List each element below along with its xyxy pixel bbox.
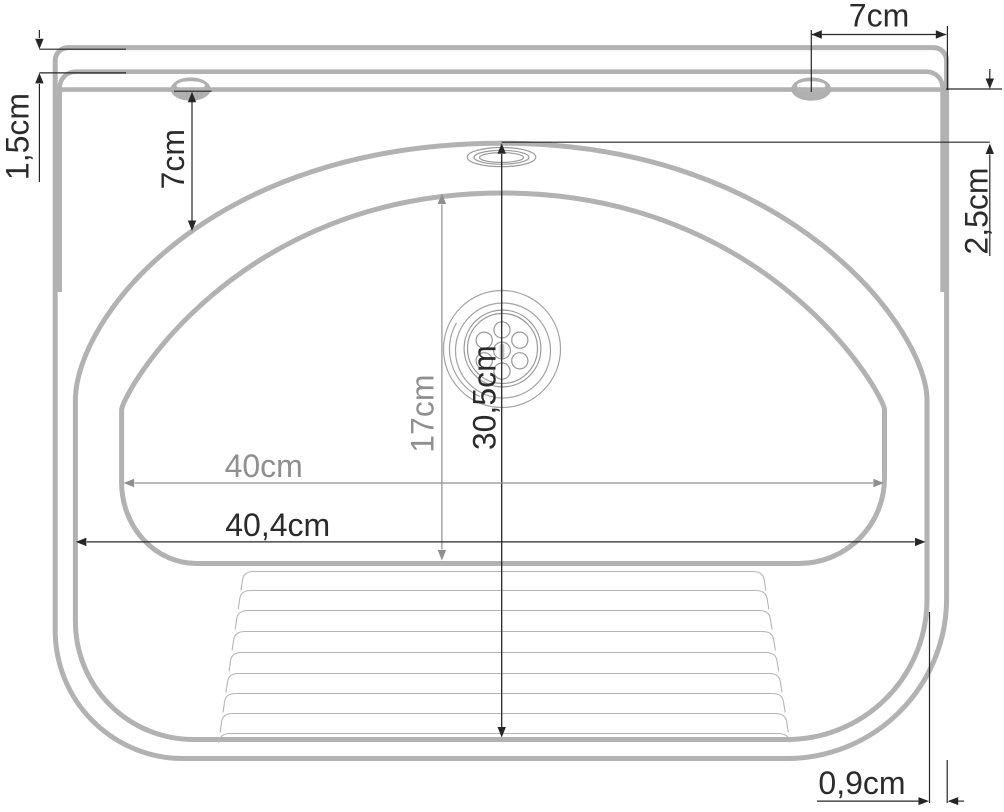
svg-text:30,5cm: 30,5cm [467, 345, 503, 450]
svg-text:7cm: 7cm [849, 0, 909, 34]
svg-text:2,5cm: 2,5cm [959, 167, 995, 254]
svg-text:40,4cm: 40,4cm [225, 507, 330, 543]
svg-text:7cm: 7cm [155, 129, 191, 189]
svg-text:0,9cm: 0,9cm [818, 765, 905, 801]
svg-text:40cm: 40cm [225, 448, 303, 484]
svg-text:1,5cm: 1,5cm [0, 93, 36, 180]
svg-text:17cm: 17cm [405, 374, 441, 452]
